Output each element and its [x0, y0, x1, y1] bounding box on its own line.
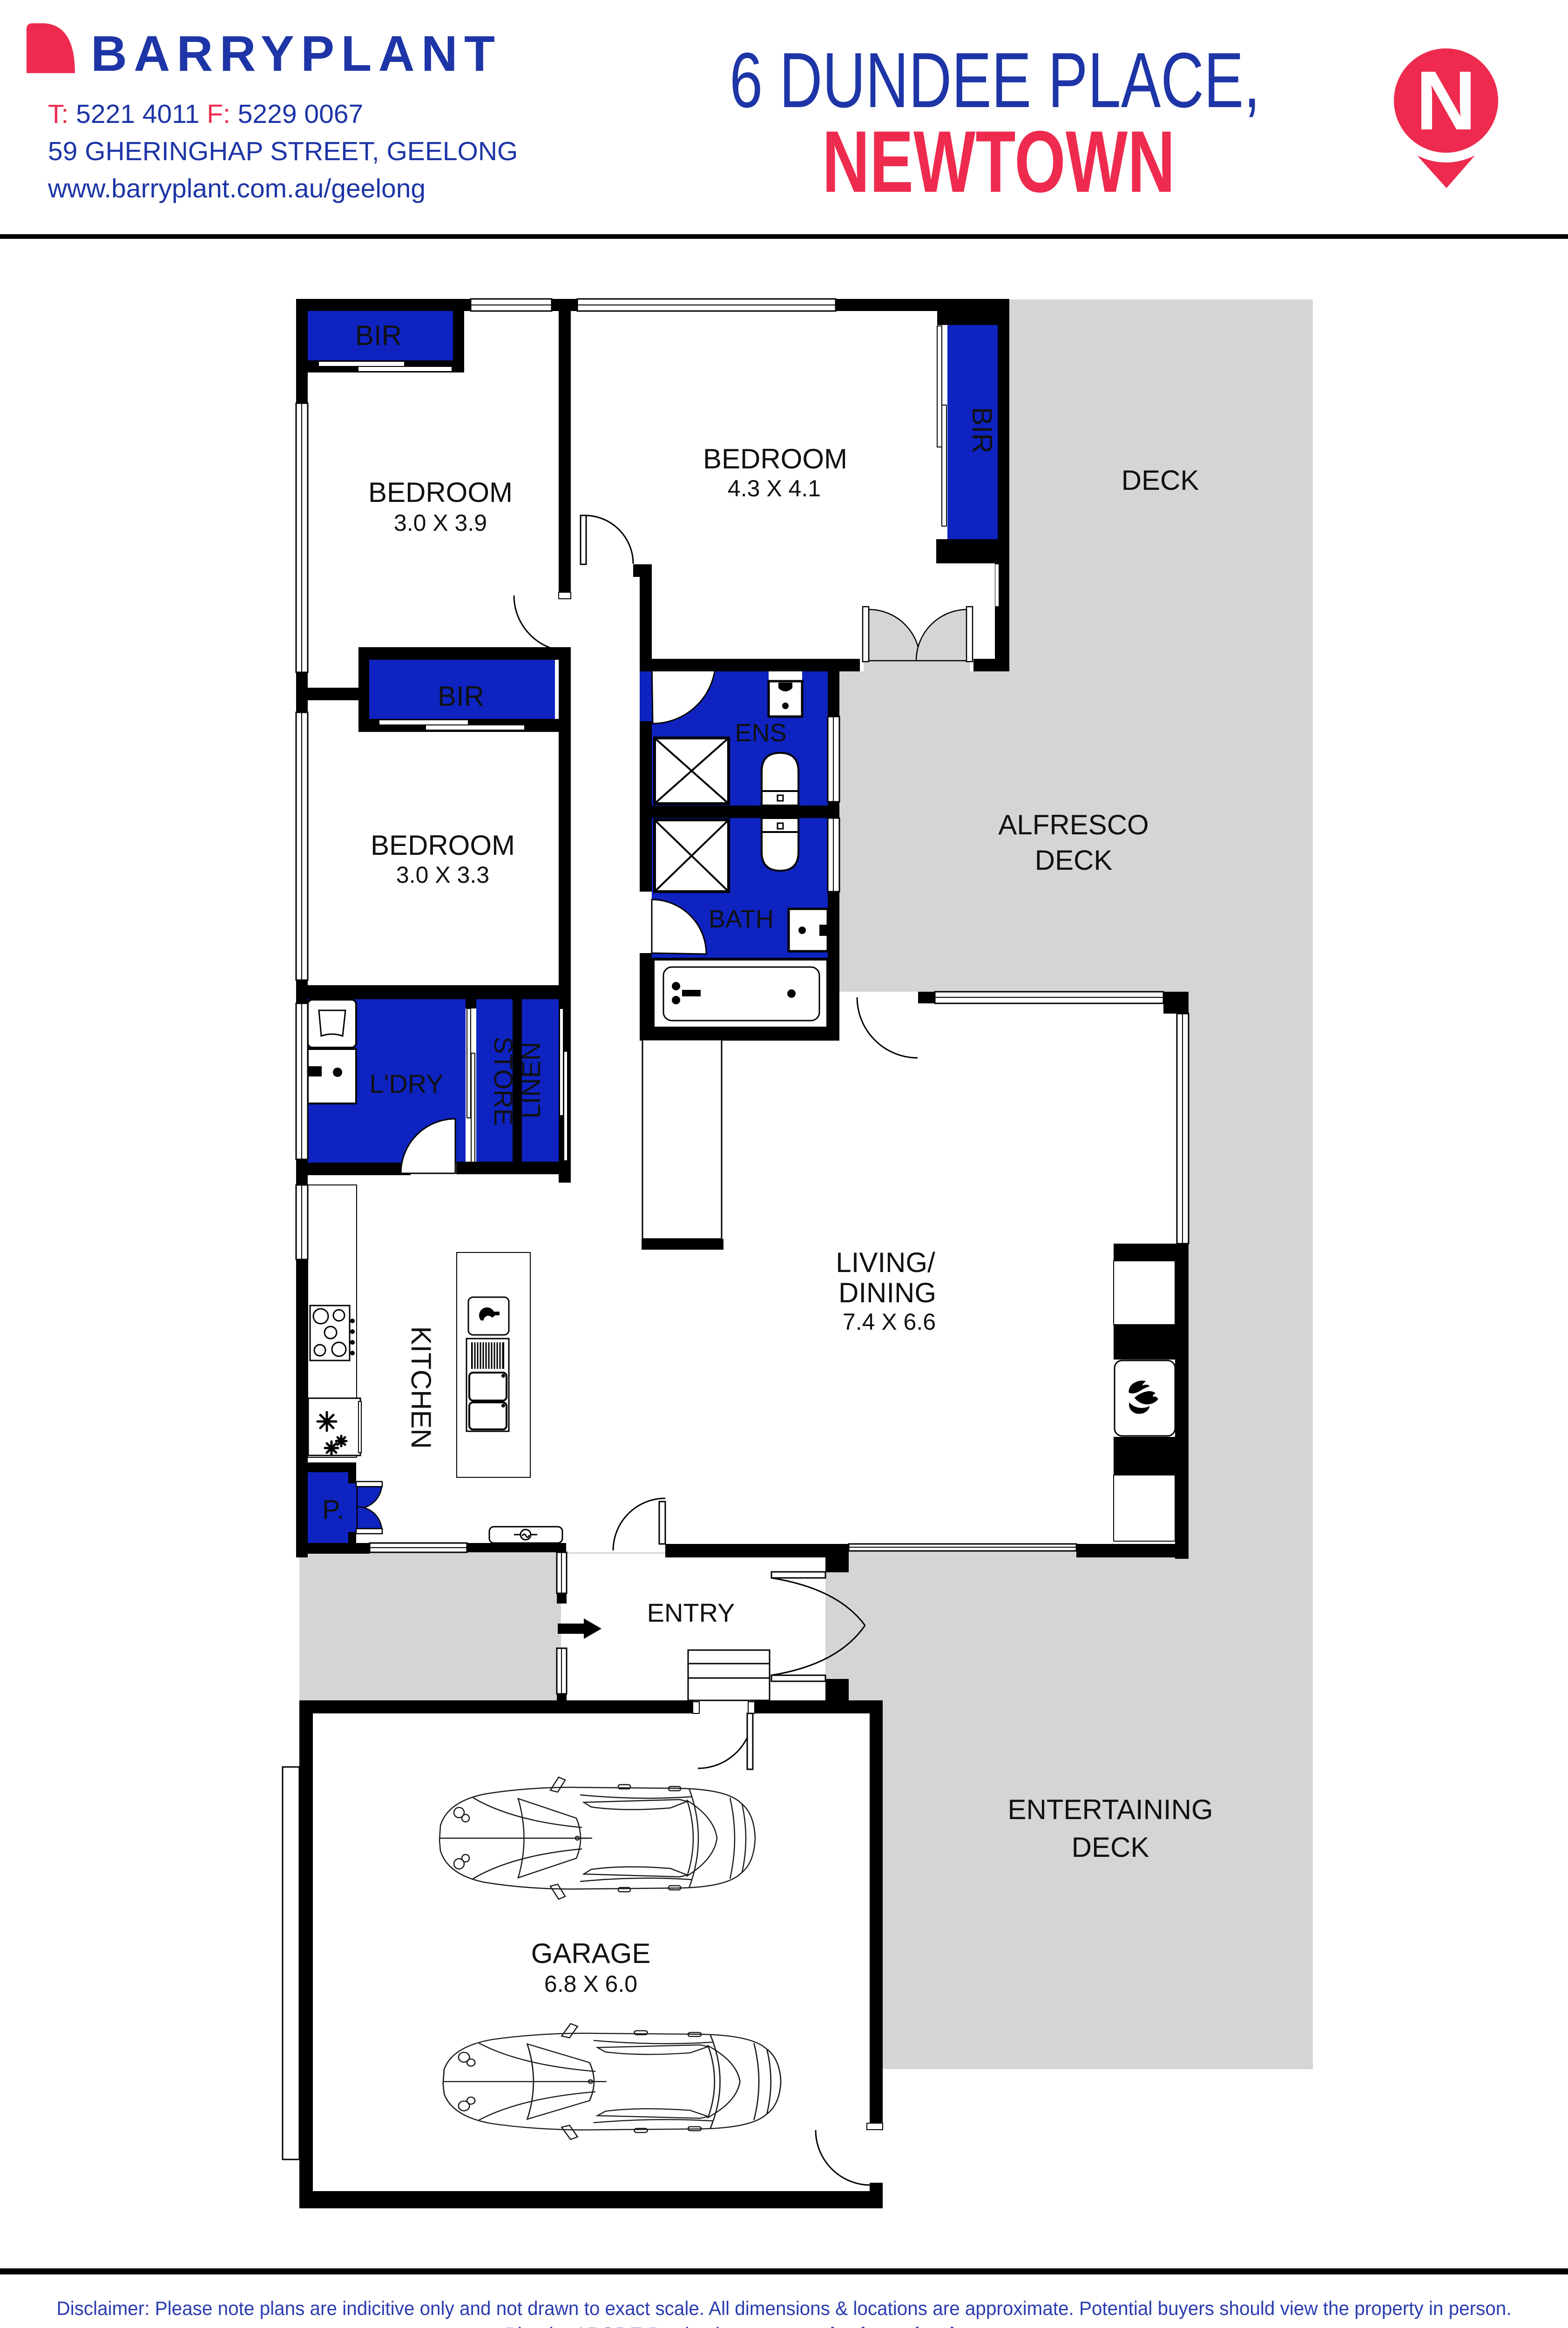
svg-text:LIVING/: LIVING/	[836, 1247, 935, 1278]
svg-text:N: N	[1416, 54, 1476, 148]
svg-text:7.4 X 6.6: 7.4 X 6.6	[843, 1309, 936, 1335]
svg-text:BARRYPLANT: BARRYPLANT	[91, 25, 495, 81]
svg-text:Plan by ABODE Productions - ww: Plan by ABODE Productions - www.abodepro…	[505, 2323, 1063, 2328]
svg-text:STORE: STORE	[489, 1036, 518, 1126]
svg-text:6.8 X 6.0: 6.8 X 6.0	[544, 1971, 637, 1997]
svg-text:ENTRY: ENTRY	[647, 1598, 735, 1627]
svg-text:BIR: BIR	[966, 407, 998, 453]
svg-text:KITCHEN: KITCHEN	[406, 1326, 437, 1448]
svg-text:ENS: ENS	[735, 719, 786, 747]
svg-text:6 DUNDEE PLACE,: 6 DUNDEE PLACE,	[730, 36, 1260, 124]
svg-text:LINEN: LINEN	[516, 1042, 546, 1119]
svg-text:GARAGE: GARAGE	[531, 1938, 651, 1969]
svg-text:Disclaimer: Please note plans: Disclaimer: Please note plans are indici…	[57, 2297, 1512, 2319]
svg-text:3.0 X 3.9: 3.0 X 3.9	[394, 510, 487, 536]
svg-text:BEDROOM: BEDROOM	[703, 443, 847, 474]
svg-text:ENTERTAINING: ENTERTAINING	[1007, 1794, 1213, 1825]
svg-text:3.0 X 3.3: 3.0 X 3.3	[396, 862, 489, 888]
svg-text:www.barryplant.com.au/geelong: www.barryplant.com.au/geelong	[47, 174, 426, 203]
svg-text:DECK: DECK	[1035, 845, 1113, 876]
svg-text:DECK: DECK	[1122, 465, 1199, 496]
svg-text:BEDROOM: BEDROOM	[371, 830, 515, 861]
svg-text:4.3 X 4.1: 4.3 X 4.1	[728, 475, 821, 501]
svg-text:BATH: BATH	[709, 905, 774, 933]
svg-text:P.: P.	[322, 1495, 344, 1525]
svg-text:DINING: DINING	[838, 1277, 936, 1308]
svg-text:BIR: BIR	[438, 681, 484, 712]
svg-text:NEWTOWN: NEWTOWN	[822, 113, 1175, 210]
svg-text:BIR: BIR	[355, 320, 402, 351]
svg-text:59 GHERINGHAP STREET, GEELONG: 59 GHERINGHAP STREET, GEELONG	[48, 136, 518, 166]
svg-text:DECK: DECK	[1072, 1832, 1149, 1863]
svg-text:T: 5221 4011 F: 5229 0067: T: 5221 4011 F: 5229 0067	[48, 99, 363, 129]
svg-text:L'DRY: L'DRY	[369, 1069, 443, 1098]
svg-text:BEDROOM: BEDROOM	[368, 477, 513, 508]
svg-text:ALFRESCO: ALFRESCO	[998, 809, 1149, 840]
